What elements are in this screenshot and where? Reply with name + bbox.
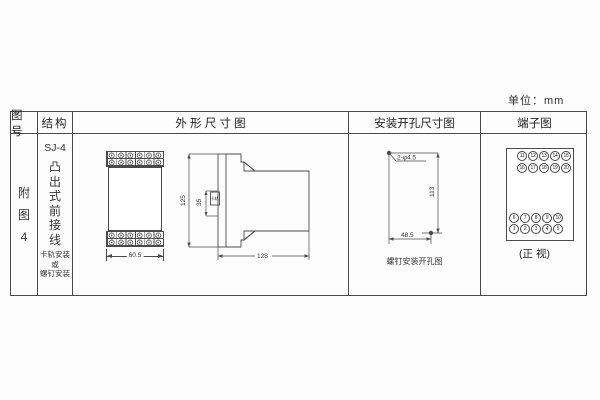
rail-box-label: 卡轨 — [211, 196, 219, 201]
terminal-circle: 5 — [553, 224, 563, 234]
terminal-cell: 11 12 13 14 15 16 17 18 19 20 6 7 8 — [481, 134, 588, 295]
terminal-circle: 8 — [531, 213, 541, 223]
header-terminal: 端子图 — [481, 112, 588, 133]
figure-no-cell: 附 图 4 — [11, 134, 38, 295]
structure-char: 式 — [38, 189, 72, 204]
terminal-strip-bottom — [106, 231, 164, 247]
mounting-cell: 2-φ4.5 113 48.5 螺钉安装开孔图 — [349, 134, 481, 295]
terminal-circle: 1 — [509, 224, 519, 234]
terminal-row-16-20: 16 17 18 19 20 — [517, 163, 571, 173]
structure-cell: SJ-4 凸 出 式 前 接 线 卡轨安装 或 螺钉安装 — [38, 134, 73, 295]
terminal-circle: 7 — [520, 213, 530, 223]
header-structure: 结构 — [38, 112, 73, 133]
terminal-circle: 16 — [517, 163, 527, 173]
mount-note-line: 螺钉安装 — [38, 269, 72, 279]
structure-char: 线 — [38, 233, 72, 248]
terminal-circle: 13 — [539, 151, 549, 161]
figure-no-text: 附 图 4 — [11, 182, 37, 248]
side-view-drawing: 125 35 卡轨 — [178, 144, 328, 284]
outline-cell: 60.5 125 — [73, 134, 349, 295]
structure-char: 凸 — [38, 160, 72, 175]
terminal-circle: 11 — [517, 151, 527, 161]
terminal-circle: 17 — [528, 163, 538, 173]
terminal-row-11-15: 11 12 13 14 15 — [517, 151, 571, 161]
terminal-caption: (正 视) — [481, 246, 588, 261]
terminal-circle: 12 — [528, 151, 538, 161]
mounting-caption: 螺钉安装开孔图 — [349, 256, 480, 267]
terminal-circle: 14 — [550, 151, 560, 161]
header-mounting: 安装开孔尺寸图 — [349, 112, 481, 133]
terminal-circle: 10 — [553, 213, 563, 223]
mount-note: 卡轨安装 或 螺钉安装 — [38, 250, 72, 279]
mount-note-line: 或 — [38, 260, 72, 270]
table-body-row: 附 图 4 SJ-4 凸 出 式 前 接 线 卡轨安装 或 — [11, 134, 586, 295]
mount-note-line: 卡轨安装 — [38, 250, 72, 260]
dim-label-side-height: 125 — [180, 195, 187, 206]
dim-label-vertical-spacing: 113 — [429, 186, 436, 197]
terminal-circle: 19 — [550, 163, 560, 173]
dim-label-front-width: 60.5 — [127, 252, 144, 259]
terminal-circle: 6 — [509, 213, 519, 223]
terminal-circle: 3 — [531, 224, 541, 234]
structure-char: 接 — [38, 218, 72, 233]
terminal-row-1-5: 1 2 3 4 5 — [509, 224, 563, 234]
datasheet-table: 图号 结构 外 形 尺 寸 图 安装开孔尺寸图 端子图 附 图 4 SJ-4 凸 — [10, 111, 587, 296]
figure-no-char: 附 — [11, 182, 37, 204]
dim-label-side-depth: 128 — [257, 253, 268, 260]
terminal-circle: 15 — [561, 151, 571, 161]
terminal-circle: 2 — [520, 224, 530, 234]
unit-label: 单位：mm — [508, 92, 564, 108]
terminal-circle: 9 — [542, 213, 552, 223]
front-view-drawing: 60.5 — [106, 151, 164, 264]
model-label: SJ-4 — [38, 142, 72, 154]
dim-label-rail-width: 35 — [196, 198, 203, 206]
terminal-row-6-10: 6 7 8 9 10 — [509, 213, 563, 223]
terminal-circle: 4 — [542, 224, 552, 234]
structure-type-vertical-text: 凸 出 式 前 接 线 — [38, 160, 72, 247]
datasheet-page: 单位：mm 图号 结构 外 形 尺 寸 图 安装开孔尺寸图 端子图 附 图 4 … — [0, 0, 600, 400]
holes-label: 2-φ4.5 — [397, 155, 416, 162]
figure-no-char: 图 — [11, 204, 37, 226]
relay-body — [108, 167, 162, 231]
table-header-row: 图号 结构 外 形 尺 寸 图 安装开孔尺寸图 端子图 — [11, 112, 586, 134]
terminal-circle: 20 — [561, 163, 571, 173]
structure-char: 出 — [38, 175, 72, 190]
dim-label-horizontal-spacing: 48.5 — [401, 232, 414, 239]
figure-no-char: 4 — [11, 226, 37, 248]
terminal-strip-top — [106, 151, 164, 167]
structure-char: 前 — [38, 204, 72, 219]
terminal-circle: 18 — [539, 163, 549, 173]
header-figure-no: 图号 — [11, 112, 38, 133]
mounting-hole-drawing: 2-φ4.5 113 48.5 — [374, 142, 479, 257]
front-width-dimension: 60.5 — [106, 247, 164, 264]
header-outline: 外 形 尺 寸 图 — [73, 112, 349, 133]
